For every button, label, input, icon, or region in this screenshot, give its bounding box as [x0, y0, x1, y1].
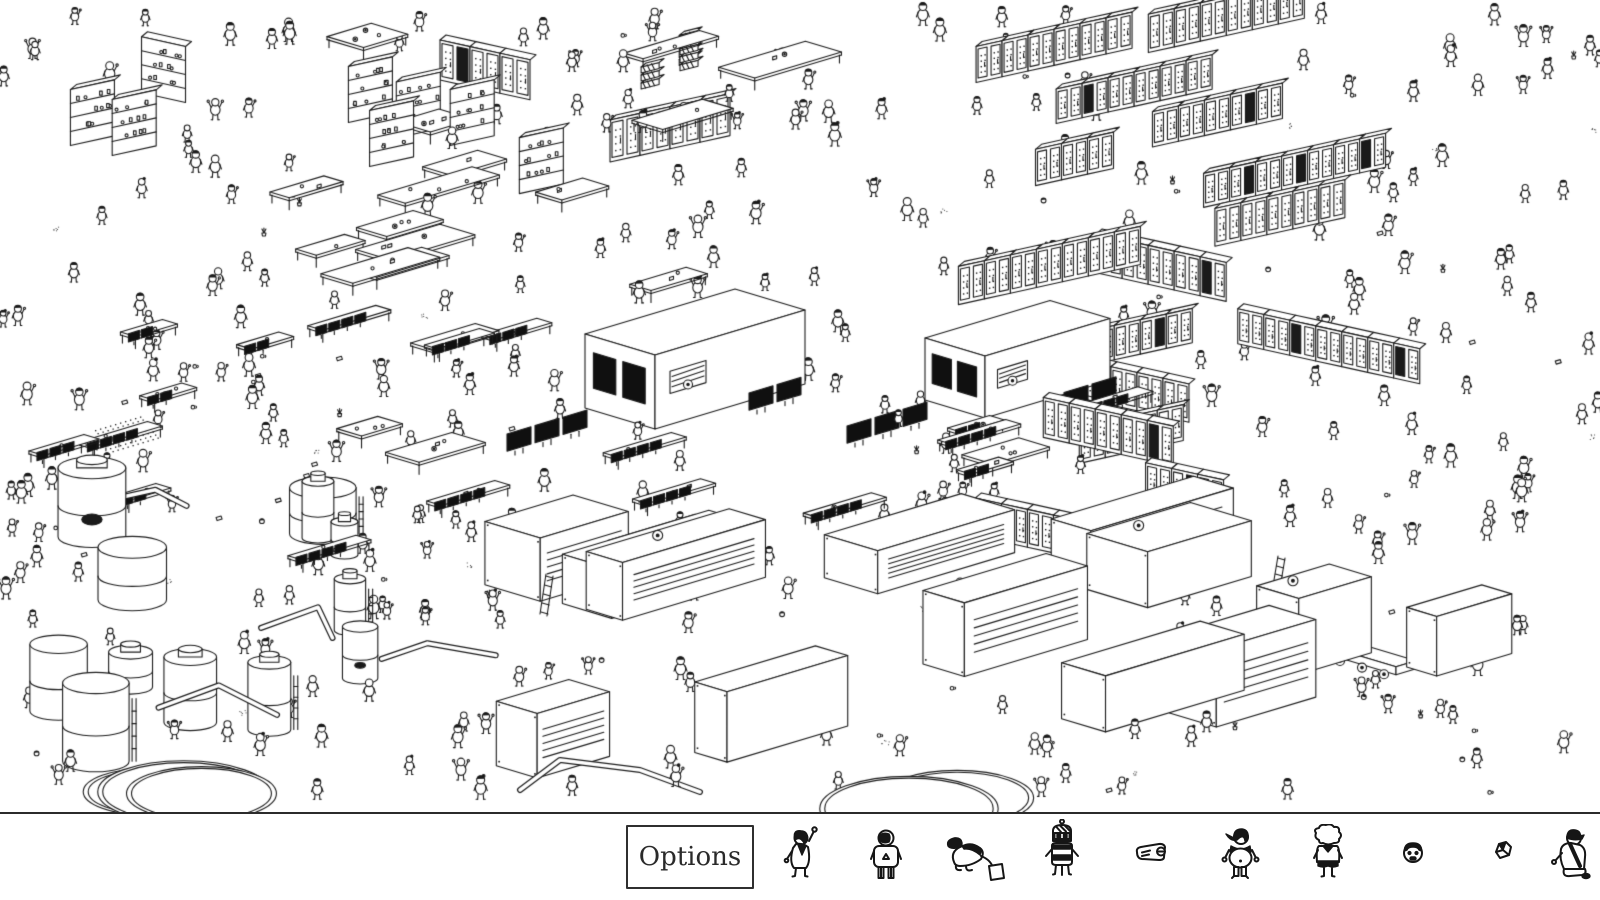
target-icon-fluffy-haired-person[interactable]: [1306, 824, 1350, 882]
target-icon-robot-with-antenna[interactable]: [1040, 819, 1084, 881]
target-icon-kneeling-person-with-cap[interactable]: [1544, 825, 1596, 883]
crouching-person-icon: [942, 832, 1008, 882]
crumpled-paper-icon: [1492, 839, 1514, 861]
scene-canvas[interactable]: [0, 0, 1600, 812]
options-button[interactable]: Options: [626, 825, 754, 889]
dark-haired-person-icon: [1217, 825, 1263, 883]
target-icon-crouching-person-with-bag[interactable]: [942, 832, 1008, 882]
hooded-person-icon: [863, 826, 909, 882]
target-icon-hooded-person[interactable]: [863, 826, 909, 882]
robot-icon: [1040, 819, 1084, 881]
small-head-icon: [1401, 839, 1425, 865]
target-icon-waving-person[interactable]: [778, 824, 822, 882]
target-icon-small-head[interactable]: [1401, 839, 1425, 865]
bottom-bar: Options: [0, 812, 1600, 900]
fluffy-haired-person-icon: [1306, 824, 1350, 882]
hidden-folks-game: Options: [0, 0, 1600, 900]
target-icon-flat-gadget[interactable]: [1130, 839, 1174, 865]
waving-person-icon: [778, 824, 822, 882]
kneeling-person-icon: [1544, 825, 1596, 883]
flat-gadget-icon: [1130, 839, 1174, 865]
target-icon-crumpled-paper[interactable]: [1492, 839, 1514, 861]
target-icon-dark-haired-person[interactable]: [1217, 825, 1263, 883]
